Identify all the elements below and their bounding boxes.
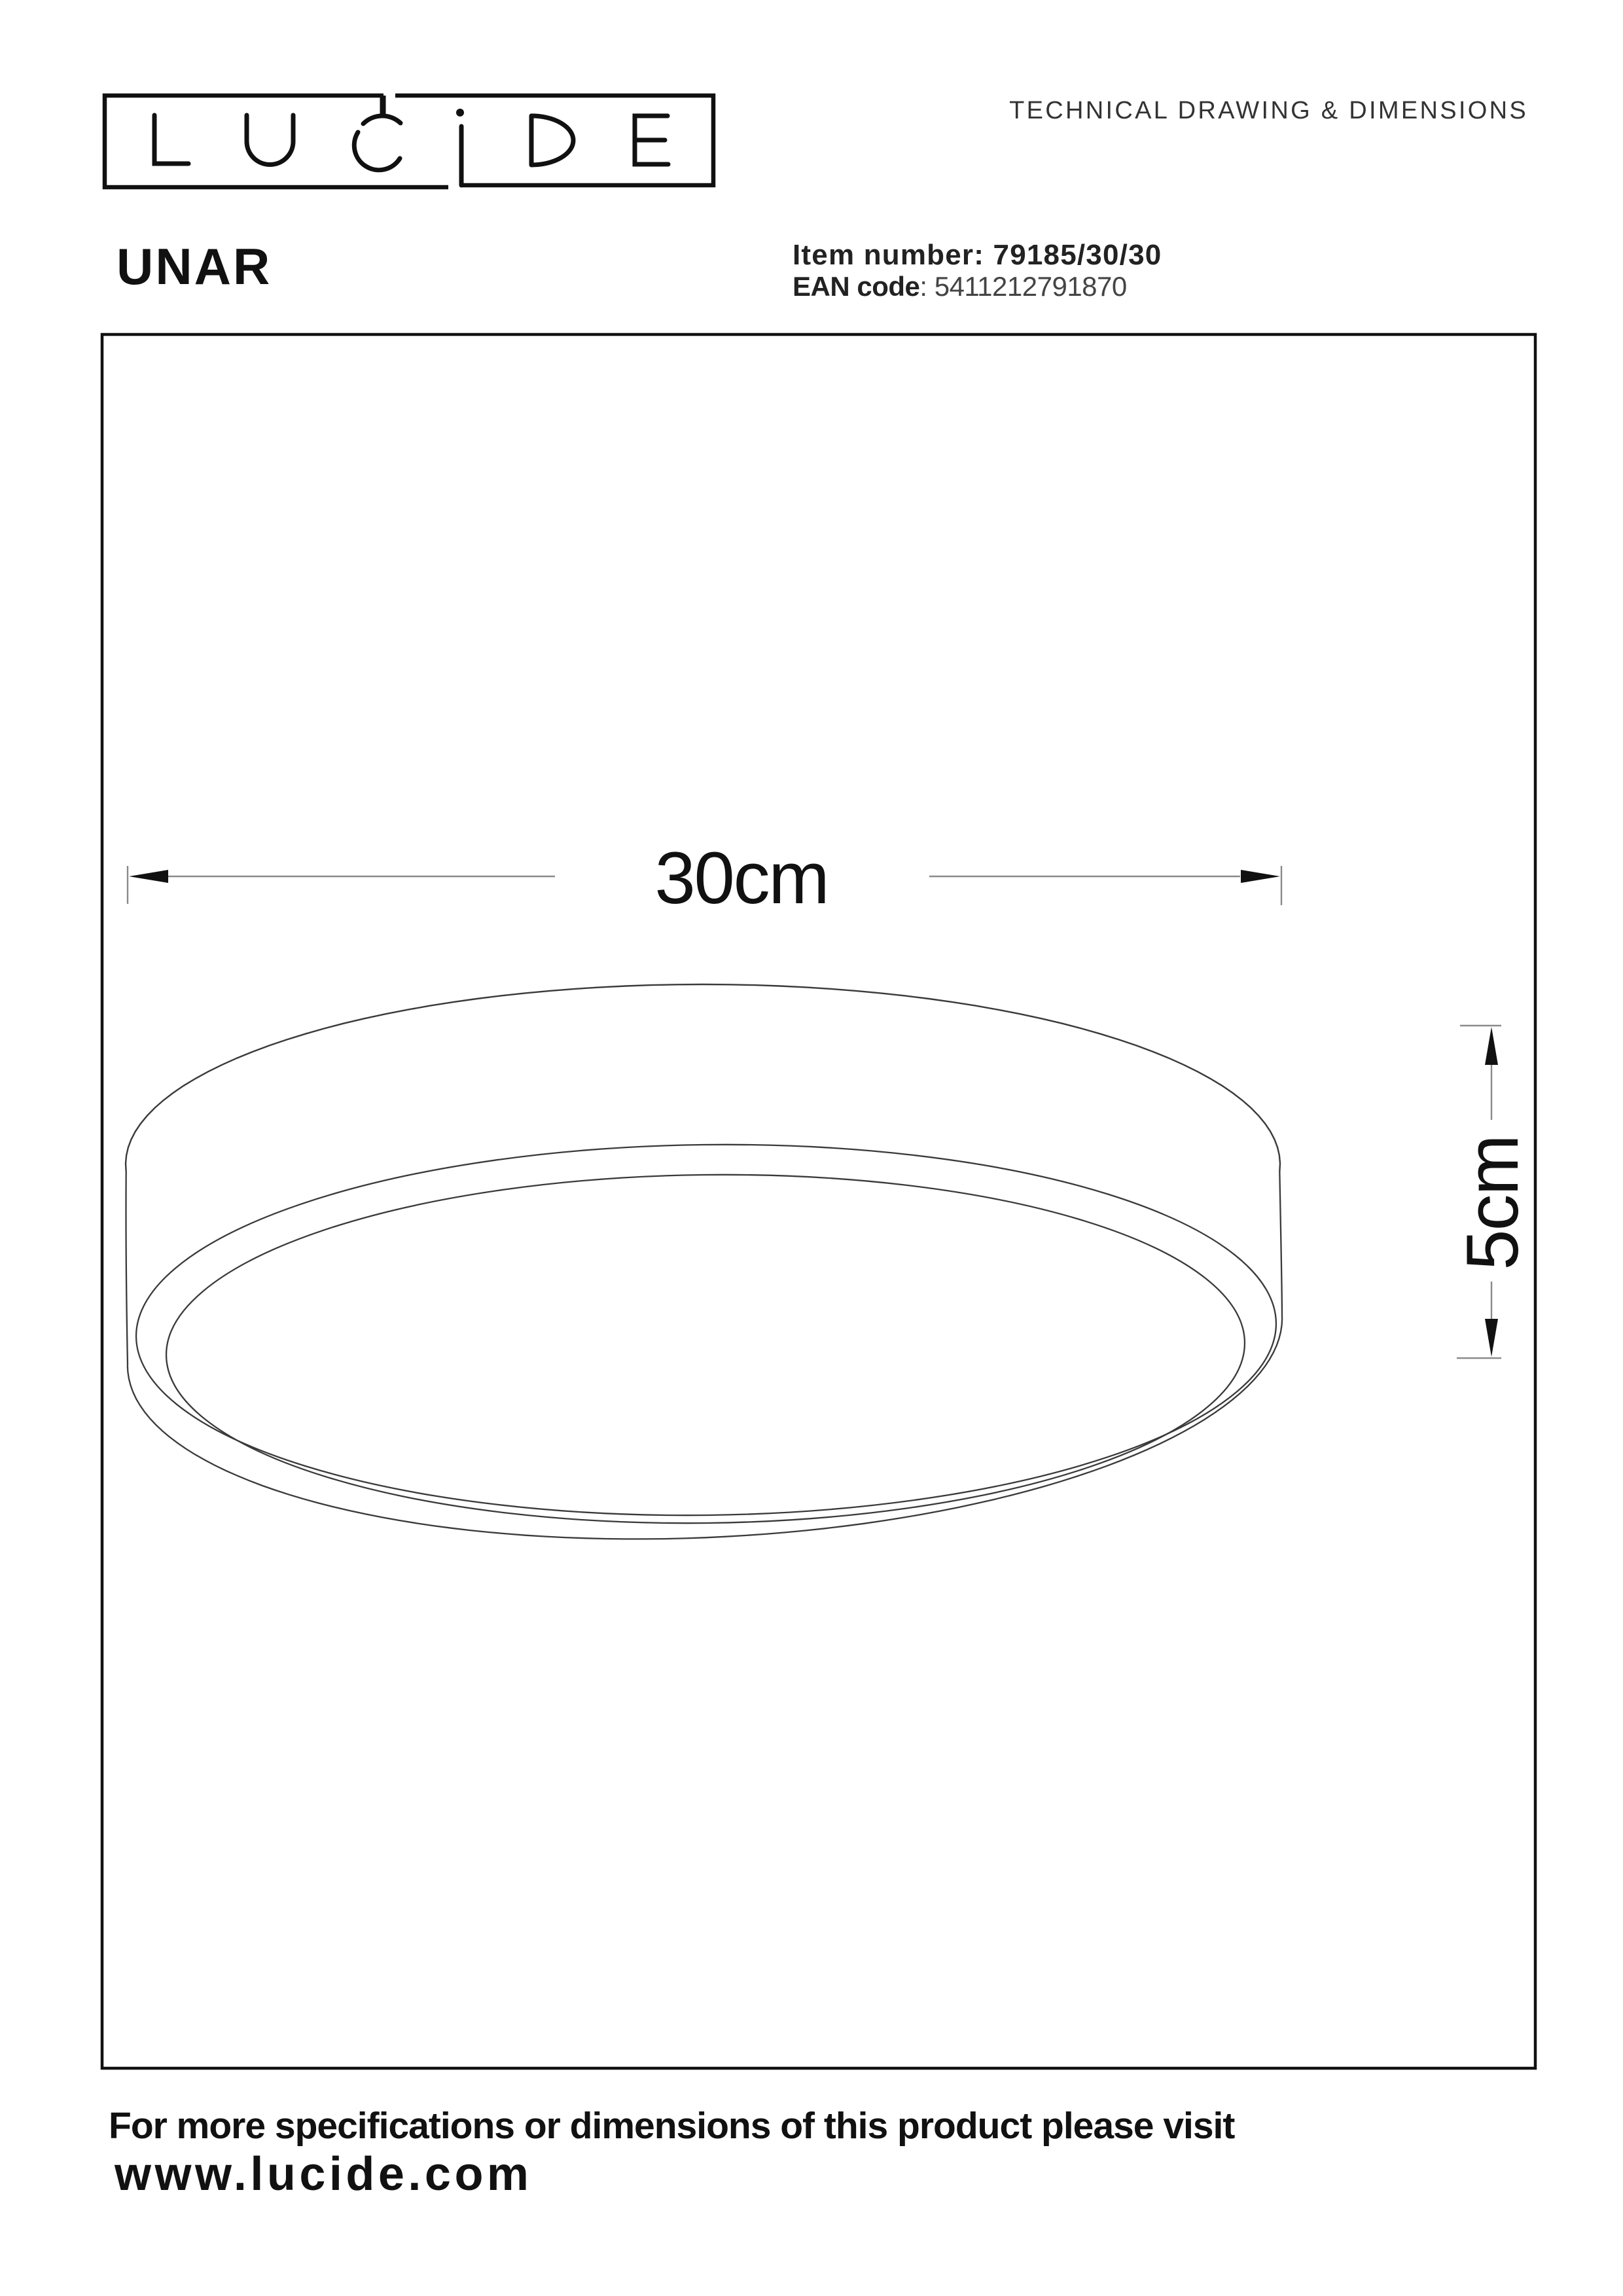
svg-text:Item number: 79185/30/30: Item number: 79185/30/30 [793,239,1162,271]
svg-text:For more specifications or dim: For more specifications or dimensions of… [109,2105,1235,2147]
svg-text:UNAR: UNAR [116,238,272,295]
svg-text:TECHNICAL DRAWING & DIMENSIONS: TECHNICAL DRAWING & DIMENSIONS [1009,97,1528,124]
svg-text:5cm: 5cm [1452,1136,1533,1270]
svg-text:30cm: 30cm [654,837,828,919]
svg-text:www.lucide.com: www.lucide.com [114,2148,532,2200]
svg-text:EAN code: 5411212791870: EAN code: 5411212791870 [793,271,1127,302]
